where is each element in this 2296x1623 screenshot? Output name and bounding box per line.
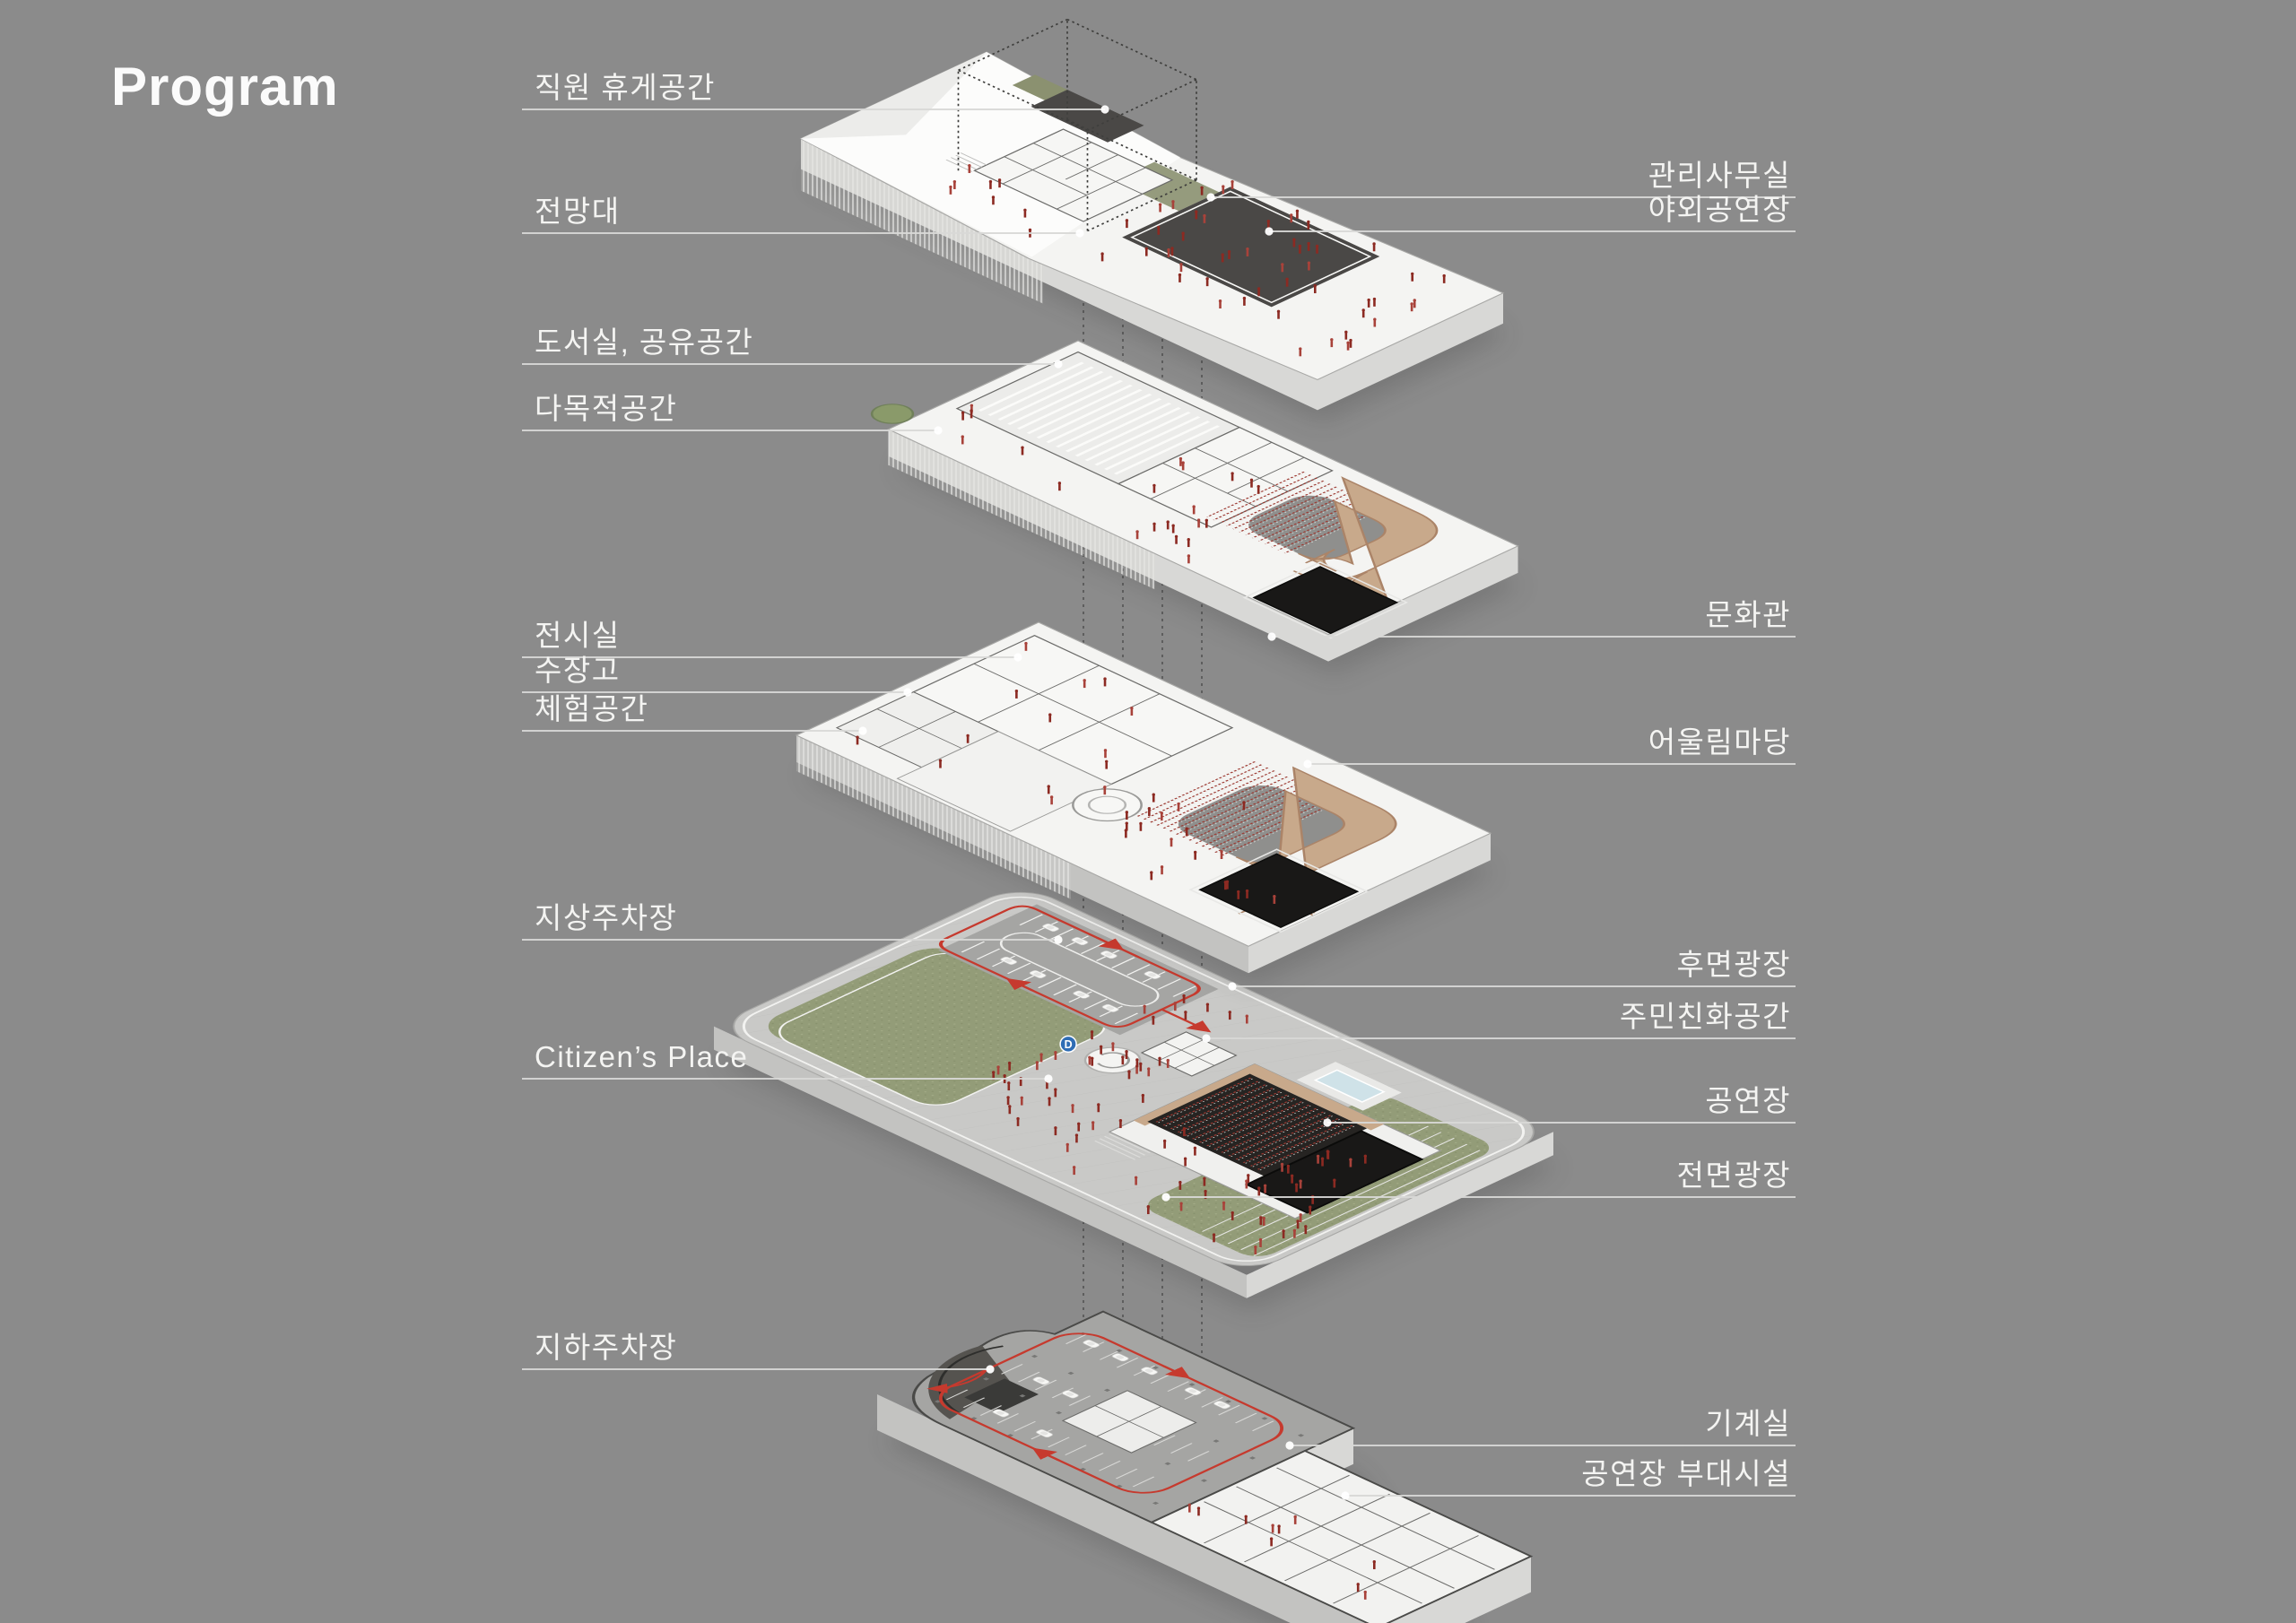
leader-dot [986,1365,994,1373]
leader-dot [1054,935,1062,943]
floor-roof-level [787,20,1509,421]
leader-dot [1323,1118,1331,1126]
exploded-axonometric-diagram: D [0,0,2296,1623]
program-label: 공연장 [1705,1083,1791,1119]
program-label: 다목적공간 [535,391,677,427]
program-diagram-page: D [0,0,2296,1623]
leader-dot [1054,360,1062,368]
leader-dot [858,726,866,734]
floor-first-exhibition-level [796,622,1496,985]
leader-dot [1303,759,1311,768]
leader-dot [1075,229,1083,237]
leader-dot [1044,1074,1052,1082]
floor-basement-parking [874,1299,1579,1623]
leader-dot [1206,193,1214,201]
program-label: 야외공연장 [1648,192,1791,228]
svg-text:D: D [1065,1038,1073,1051]
program-label: 어울림마당 [1648,725,1791,760]
program-label: 전면광장 [1677,1158,1791,1193]
page-title: Program [111,56,339,117]
leader-dot [1202,1034,1210,1042]
program-label: 전망대 [535,194,621,230]
program-label: 주민친화공간 [1620,999,1791,1035]
program-label: 지상주차장 [535,900,677,936]
leader-dot [903,688,911,696]
leader-dot [1267,632,1275,640]
drop-off-badge: D [1060,1036,1076,1052]
program-label: 체험공간 [535,691,648,727]
leader-dot [934,426,942,434]
floor-second-library-level [857,327,1523,674]
leader-dot [1161,1193,1170,1201]
program-label: 전시실 [535,618,621,654]
program-label: 도서실, 공유공간 [535,325,753,360]
leader-dot [1228,982,1236,990]
floor-site-ground-level: D [714,883,1559,1311]
program-label: 지하주차장 [535,1330,677,1366]
program-label: Citizen’s Place [535,1039,748,1075]
program-label: 수장고 [535,653,621,689]
program-label: 후면광장 [1677,947,1791,983]
leader-dot [1013,653,1022,661]
program-label: 공연장 부대시설 [1581,1456,1791,1492]
program-label: 문화관 [1705,597,1791,633]
program-label: 직원 휴게공간 [535,70,716,106]
leader-dot [1265,227,1273,235]
leader-dot [1100,105,1109,113]
leader-dot [1341,1491,1349,1499]
leader-dot [1285,1441,1293,1449]
program-label: 기계실 [1705,1406,1791,1442]
program-label: 관리사무실 [1648,158,1791,194]
